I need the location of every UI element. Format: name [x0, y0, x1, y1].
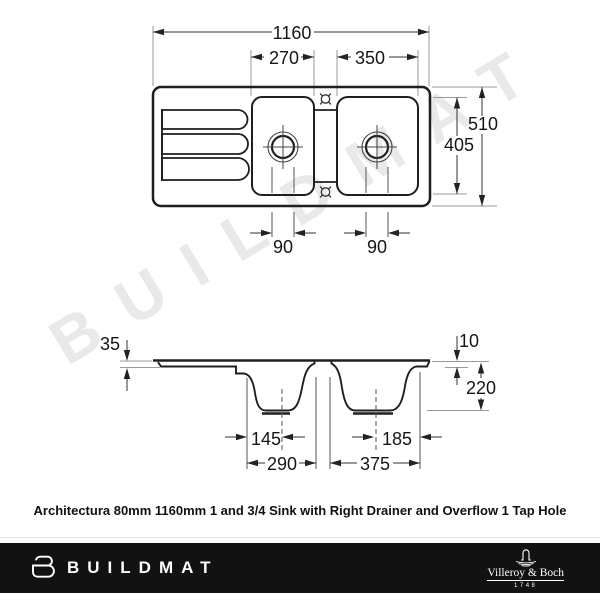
drain-extension-lines	[272, 167, 388, 237]
product-title: Architectura 80mm 1160mm 1 and 3/4 Sink …	[0, 503, 600, 518]
villeroy-boch-name: Villeroy & Boch	[487, 567, 564, 581]
dim-right-drain: 90	[367, 237, 387, 257]
dim-middle-bowl-width: 270	[269, 48, 299, 68]
villeroy-boch-year: 1748	[487, 583, 564, 589]
dim-right-bowl-width: 350	[355, 48, 385, 68]
side-view-dimension-lines	[127, 336, 481, 463]
bowl-saddle-lines	[315, 110, 336, 182]
dim-right-bowl-inner: 375	[360, 454, 390, 474]
villeroy-boch-icon	[513, 548, 539, 567]
dim-overall-depth: 510	[468, 114, 498, 134]
dim-middle-drain-offset: 145	[251, 429, 281, 449]
buildmat-logo-icon	[28, 555, 58, 581]
drain-centerlines	[282, 389, 376, 452]
drainer-grooves	[162, 109, 249, 181]
top-view-dimension-lines	[153, 32, 482, 233]
sink-profile	[153, 361, 430, 414]
buildmat-logo-text: BUILDMAT	[67, 558, 219, 578]
product-diagram-page: BUILDMAT	[0, 0, 600, 600]
dim-right-drain-offset: 185	[382, 429, 412, 449]
top-view-drawing: 1160 270 350 510 405 90 90	[153, 23, 498, 257]
dim-overall-width: 1160	[273, 23, 312, 43]
dim-bowl-depth: 405	[444, 135, 474, 155]
middle-drain-icon	[263, 125, 303, 169]
overflow-icon	[320, 187, 331, 198]
villeroy-boch-logo: Villeroy & Boch 1748	[487, 548, 564, 589]
dim-edge-height: 10	[459, 331, 479, 351]
side-view-drawing: 35 10 220 145 185 290 375	[100, 331, 496, 474]
footer-divider	[0, 537, 600, 538]
dim-middle-drain: 90	[273, 237, 293, 257]
tap-hole-icon	[320, 94, 331, 105]
dim-depth-220: 220	[466, 378, 496, 398]
top-view-extension-lines	[153, 26, 497, 206]
right-drain-icon	[357, 125, 397, 169]
footer-bar: BUILDMAT Villeroy & Boch 1748	[0, 543, 600, 593]
dim-middle-bowl-inner: 290	[267, 454, 297, 474]
buildmat-logo: BUILDMAT	[28, 555, 219, 581]
dim-rim-thickness: 35	[100, 334, 120, 354]
side-view-extension-lines	[120, 361, 489, 411]
